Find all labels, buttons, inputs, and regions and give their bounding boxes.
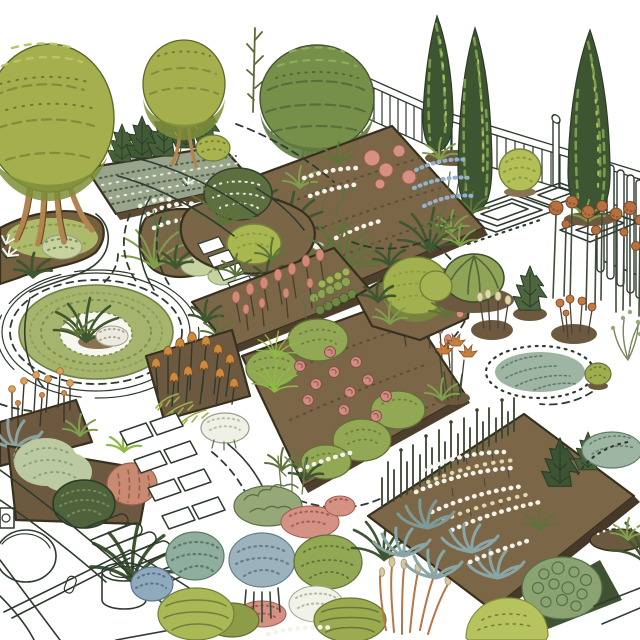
- globe-flower-circle: [551, 295, 597, 344]
- blue-grass-drift: [486, 346, 594, 398]
- garden-illustration: [0, 0, 640, 640]
- dark-knobby-dome: [53, 480, 115, 528]
- dwarf-conifer-island: [513, 266, 547, 321]
- round-bush: [499, 149, 541, 197]
- green-speckle-mound: [294, 535, 362, 589]
- dwarf-shrub-island: [585, 363, 611, 390]
- left-subcluster: [131, 532, 234, 640]
- striped-mound: [314, 598, 386, 640]
